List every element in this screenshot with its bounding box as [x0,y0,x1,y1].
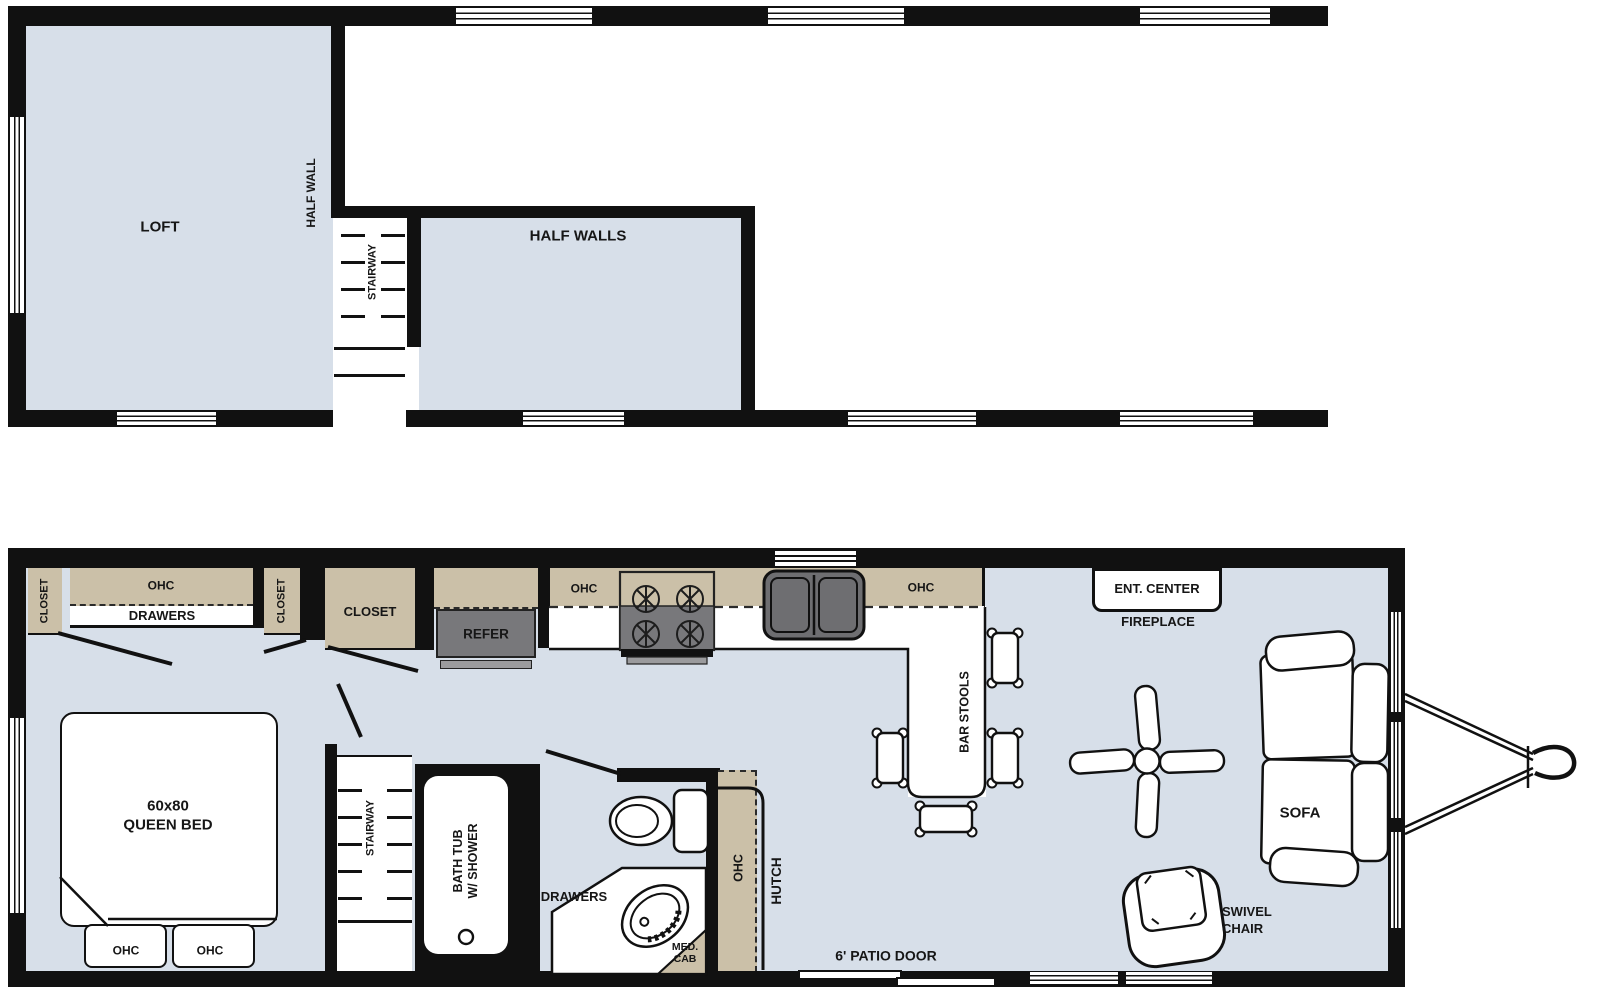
stair-tread [341,234,365,237]
upper-top-window-1 [456,8,592,24]
lower-bottom-window-2 [1126,972,1212,984]
stair-tread [338,870,362,873]
bedroom-window [10,718,24,913]
lower-stairway [337,755,412,972]
ent-center-label: ENT. CENTER [1114,581,1199,597]
patio-door-panel-1 [798,970,902,980]
stair-tread [387,789,412,792]
right-window-3 [1391,832,1401,928]
wall-stub [300,568,325,640]
right-window-2 [1391,722,1401,818]
right-window-1 [1391,612,1401,712]
stair-tread [387,816,412,819]
stair-tread [338,897,362,900]
kitchen-ohc-right-label: OHC [908,581,935,596]
stair-tread [341,261,365,264]
wall-stub [253,568,264,628]
stair-tread [338,843,362,846]
bedroom-ohc-label: OHC [148,579,175,594]
upper-stairway-label: STAIRWAY [366,244,379,300]
stair-tread [341,288,365,291]
sofa-label: SOFA [1280,805,1321,824]
upper-bottom-window-2 [523,412,624,425]
stair-tread [381,261,405,264]
upper-stair-opening [333,410,406,427]
stair-wall [325,744,337,972]
stair-tread [338,920,412,923]
lower-bottom-window-1 [1030,972,1118,984]
stair-tread [381,315,405,318]
kitchen-ohc-left-label: OHC [571,582,598,597]
stair-tread [341,315,365,318]
upper-left-window [10,117,24,313]
refrigerator-door [440,660,532,669]
kitchen-wall [538,568,550,648]
bedroom-drawers-label: DRAWERS [129,608,195,624]
half-walls-area [419,218,741,410]
med-cab-label: MED.CAB [672,941,698,965]
kitchen-window [775,551,856,566]
upper-bottom-window-3 [848,412,976,425]
loft-half-wall [331,26,345,207]
loft-label: LOFT [140,219,179,238]
stair-tread [338,789,362,792]
bed-ohc-left-label: OHC [113,944,140,959]
stair-tread [334,347,405,350]
lower-stairway-label: STAIRWAY [364,800,377,856]
upper-top-window-2 [768,8,904,24]
patio-door-label: 6' PATIO DOOR [835,947,937,965]
half-walls-top-wall [331,206,755,218]
stair-tread [387,870,412,873]
stair-tread [338,816,362,819]
stair-tread [387,843,412,846]
stair-tread [381,288,405,291]
half-walls-label: HALF WALLS [530,228,627,247]
half-walls-right-wall [741,206,755,410]
bathtub-label: BATH TUBW/ SHOWER [451,824,481,899]
hutch-label: HUTCH [769,857,785,904]
trailer-hitch [1405,694,1574,834]
closet-mid-label: CLOSET [275,579,288,624]
bed-ohc-right-label: OHC [197,944,224,959]
upper-bottom-window-4 [1120,412,1253,425]
closet-left-label: CLOSET [38,579,51,624]
stair-tread [334,374,405,377]
bath-drawers-label: DRAWERS [541,889,607,905]
bar-stools-label: BAR STOOLS [958,671,973,753]
hitch-coupler-icon [1533,747,1574,778]
upper-top-window-3 [1140,8,1270,24]
bath-top-wall [617,768,708,782]
stair-tread [381,234,405,237]
stair-tread [387,897,412,900]
swivel-chair-label: SWIVELCHAIR [1222,904,1272,938]
upper-top-wall [8,6,1328,26]
lower-top-wall [8,548,1405,568]
queen-bed-label: 60x80QUEEN BED [123,797,212,835]
floorplan-canvas: LOFT HALF WALL STAIRWAY HALF WALLS CLOSE… [0,0,1600,987]
closet-hall-label: CLOSET [344,604,397,620]
upper-bottom-window-1 [117,412,216,425]
patio-door-panel-2 [896,977,996,987]
half-wall-label: HALF WALL [304,158,318,227]
refer-label: REFER [463,627,509,644]
upper-stair-right-wall [407,218,421,347]
fireplace-label: FIREPLACE [1121,614,1195,630]
refer-ohc [434,568,538,609]
hutch-ohc-label: OHC [732,854,747,882]
wall-stub [415,568,434,650]
